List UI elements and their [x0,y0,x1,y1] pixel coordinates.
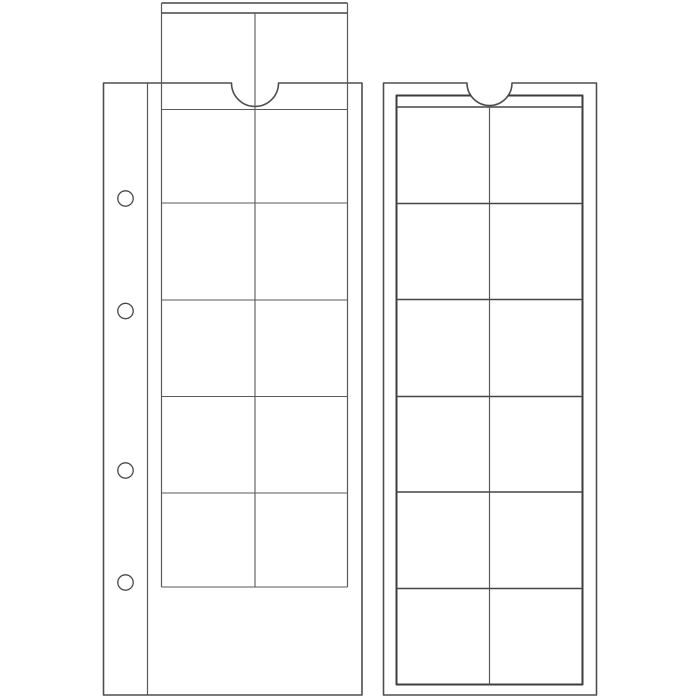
drawing-background [0,0,700,700]
line-drawing-svg [0,0,700,700]
coin-sheets-line-drawing [0,0,700,700]
